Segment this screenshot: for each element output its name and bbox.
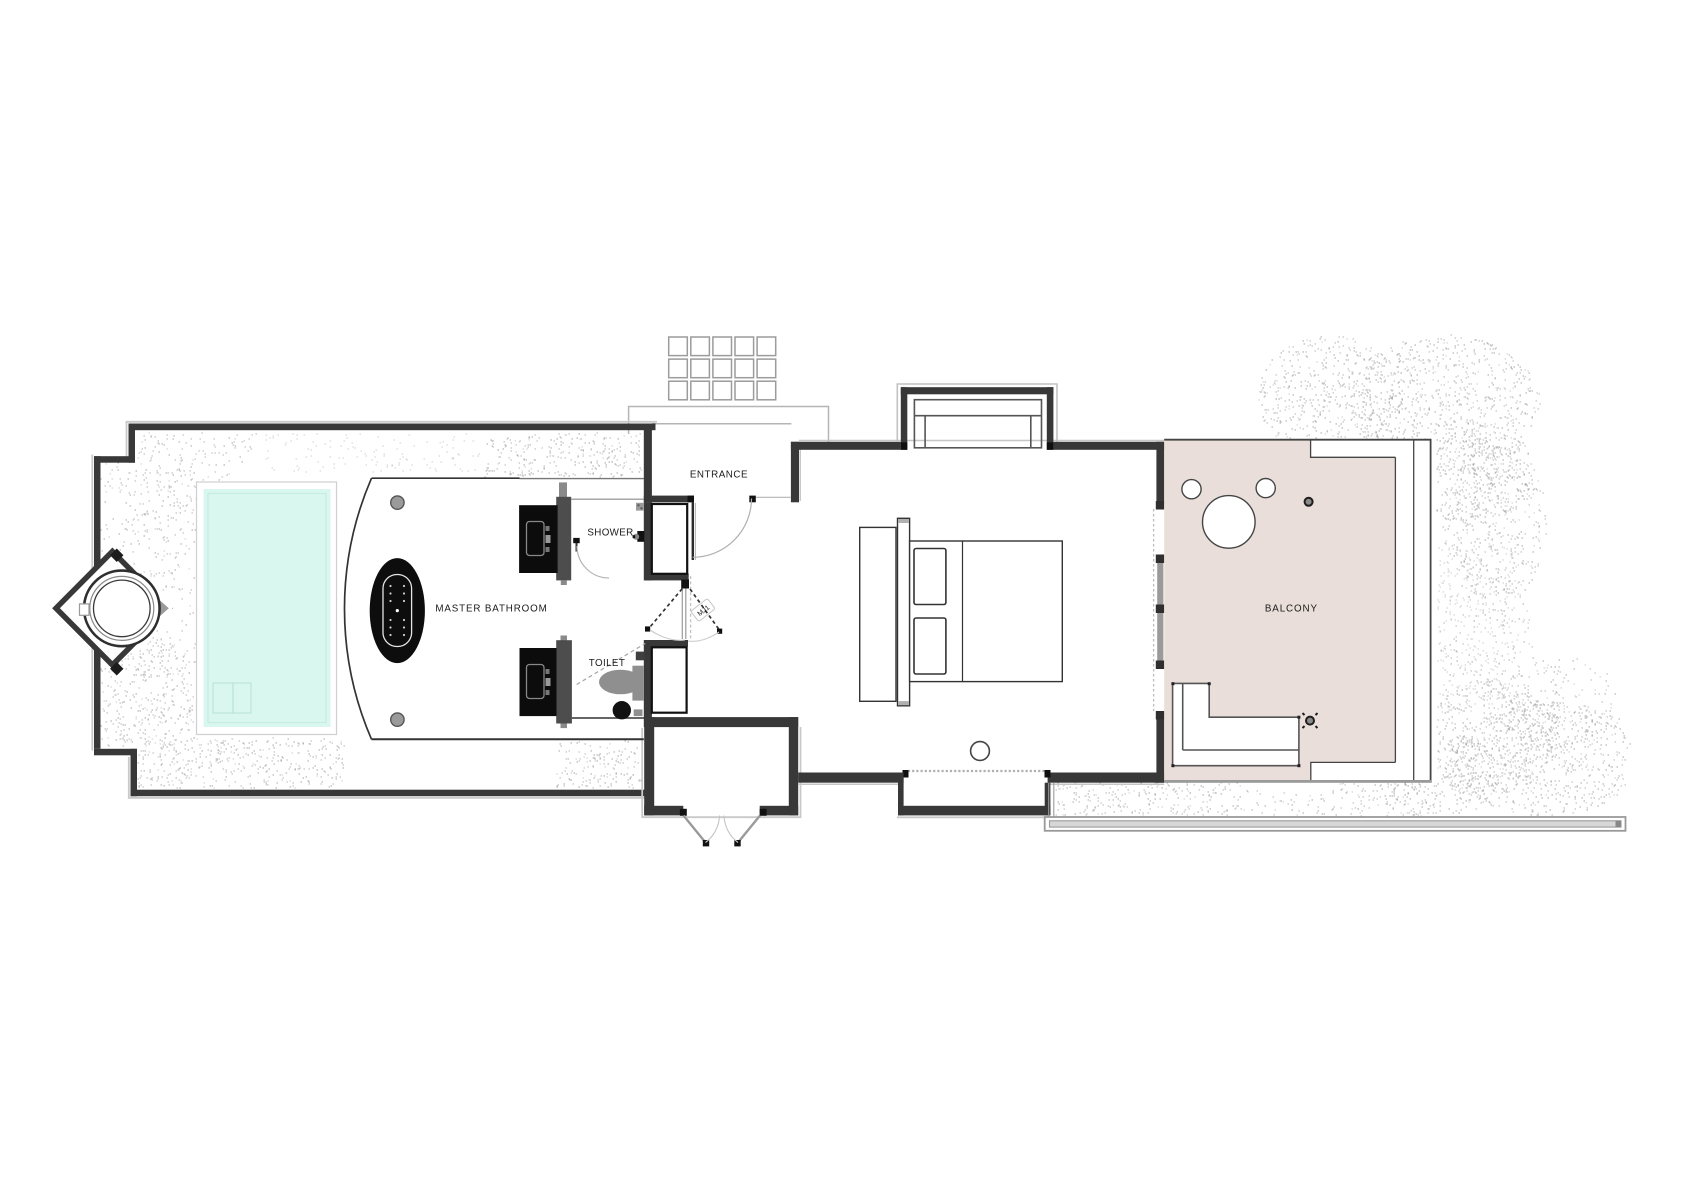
svg-text:BALCONY: BALCONY [1265,603,1318,614]
svg-text:TOILET: TOILET [589,658,626,669]
svg-text:SHOWER: SHOWER [587,528,633,539]
svg-text:MASTER BATHROOM: MASTER BATHROOM [435,604,547,615]
svg-text:ENTRANCE: ENTRANCE [690,470,748,481]
